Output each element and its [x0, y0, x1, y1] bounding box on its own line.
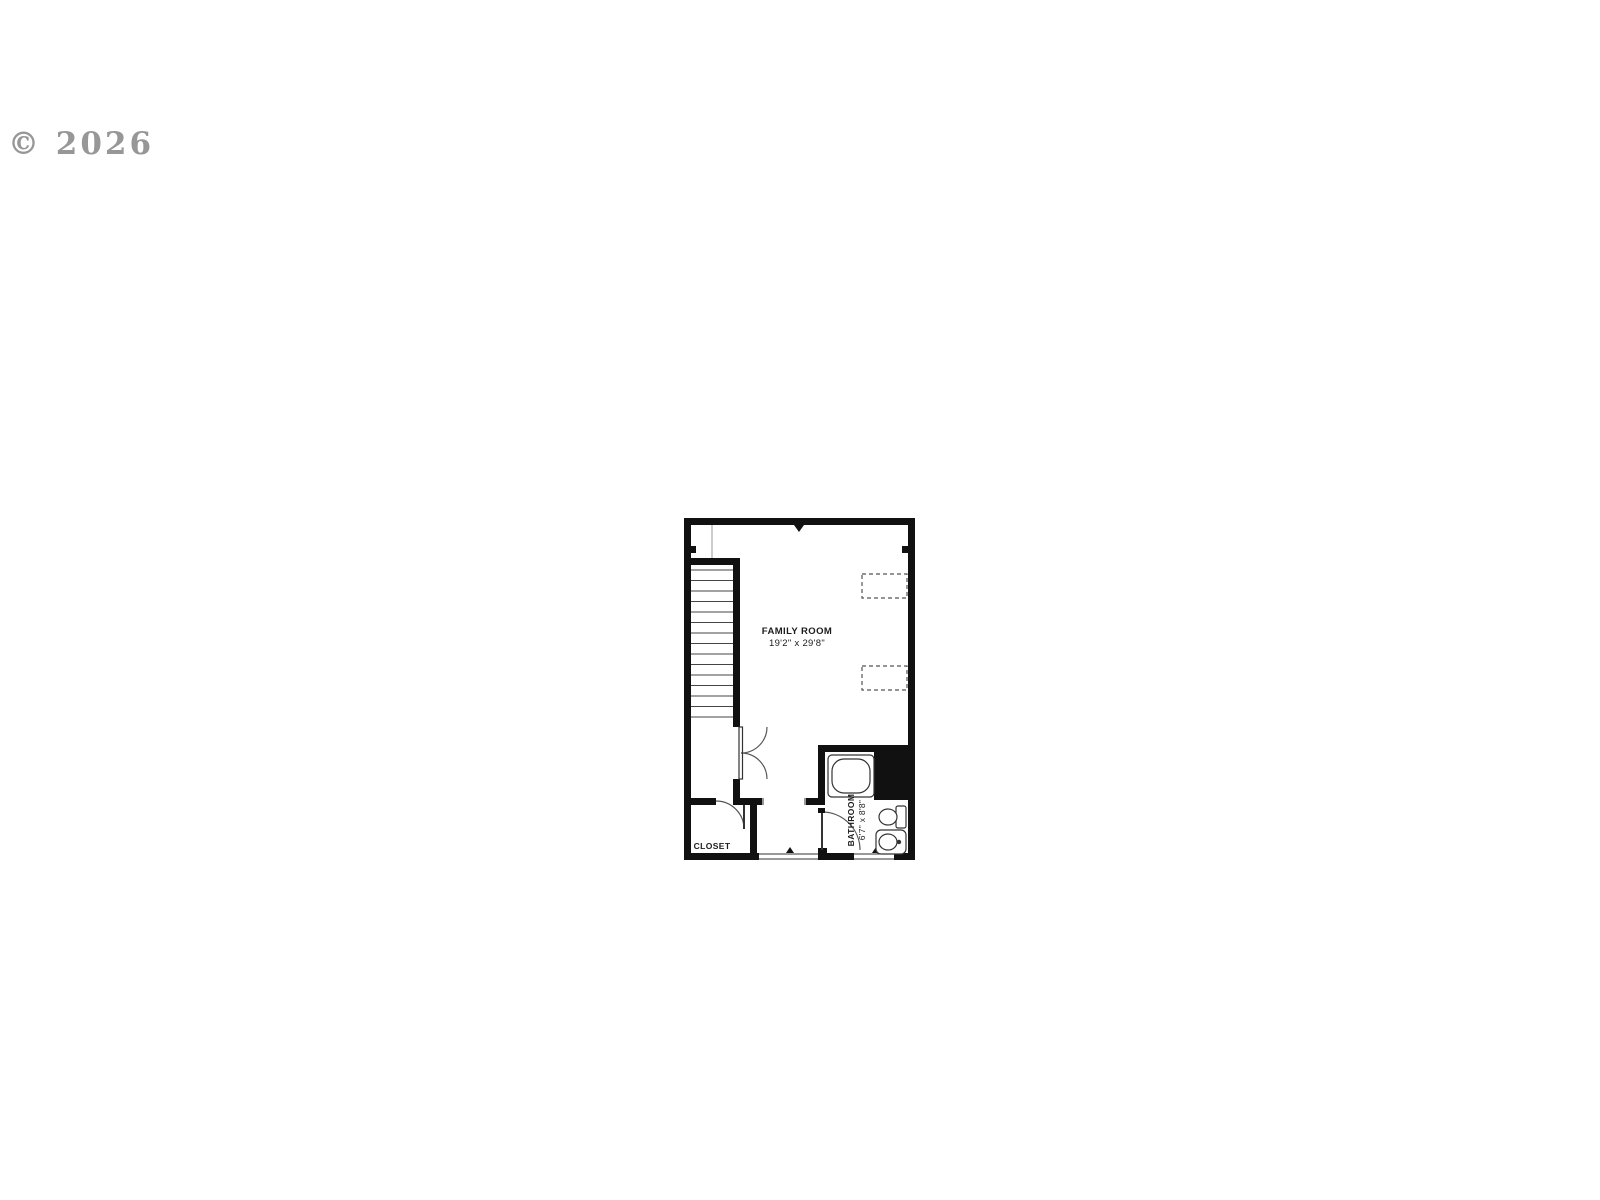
closet-right-wall — [750, 798, 757, 860]
bathroom-label: BATHROOM — [846, 794, 856, 847]
bathroom-dimensions: 6'7" x 8'8" — [857, 800, 867, 840]
window-tick — [786, 847, 794, 853]
dashed-ceiling-boxes — [862, 574, 907, 690]
hall-walls — [733, 798, 825, 805]
window — [759, 847, 826, 859]
sink — [876, 830, 906, 854]
door-leaf — [739, 727, 743, 779]
stair-right-wall-upper — [733, 558, 740, 727]
floor-plan: FAMILY ROOM 19'2" x 29'8" CLOSET BATHROO… — [0, 0, 1600, 1200]
wall-markers — [691, 525, 908, 553]
wall-right — [908, 518, 915, 860]
bathtub — [828, 755, 874, 797]
right-wall-tick — [902, 546, 908, 553]
closet-door — [716, 801, 744, 829]
wall-void — [874, 752, 908, 800]
wall-bottom-left — [684, 853, 759, 860]
dashed-ceiling-box — [862, 666, 907, 690]
page: © 2026 — [0, 0, 1600, 1200]
closet-label: CLOSET — [694, 841, 731, 851]
wall-bottom-center — [826, 853, 854, 860]
hall-wall-left — [733, 798, 762, 805]
passage-jamb — [804, 798, 806, 805]
door-arc — [716, 801, 744, 829]
passage-jamb — [762, 798, 764, 805]
sink-faucet — [897, 840, 900, 843]
wall-left — [684, 518, 691, 860]
bathroom-left-wall-upper — [818, 752, 825, 805]
stair-top-wall — [684, 558, 740, 565]
toilet-bowl — [879, 809, 897, 825]
bathtub-inner — [832, 759, 870, 793]
top-wall-tick — [794, 525, 804, 532]
dashed-ceiling-box — [862, 574, 907, 598]
staircase — [684, 525, 740, 805]
bathroom-top-wall — [818, 745, 915, 752]
left-wall-tick — [691, 546, 696, 553]
outer-walls — [684, 518, 915, 860]
closet-top-wall-left — [684, 798, 716, 805]
sink-basin — [879, 834, 897, 850]
understair-double-door — [739, 727, 767, 779]
toilet — [879, 806, 906, 828]
stair-treads — [691, 570, 733, 717]
door-arc — [741, 753, 767, 779]
door-arc — [741, 727, 767, 753]
family-room-label: FAMILY ROOM — [762, 626, 832, 637]
door-hinge-tick — [818, 808, 825, 813]
family-room-dimensions: 19'2" x 29'8" — [769, 638, 825, 649]
wall-top — [684, 518, 915, 525]
